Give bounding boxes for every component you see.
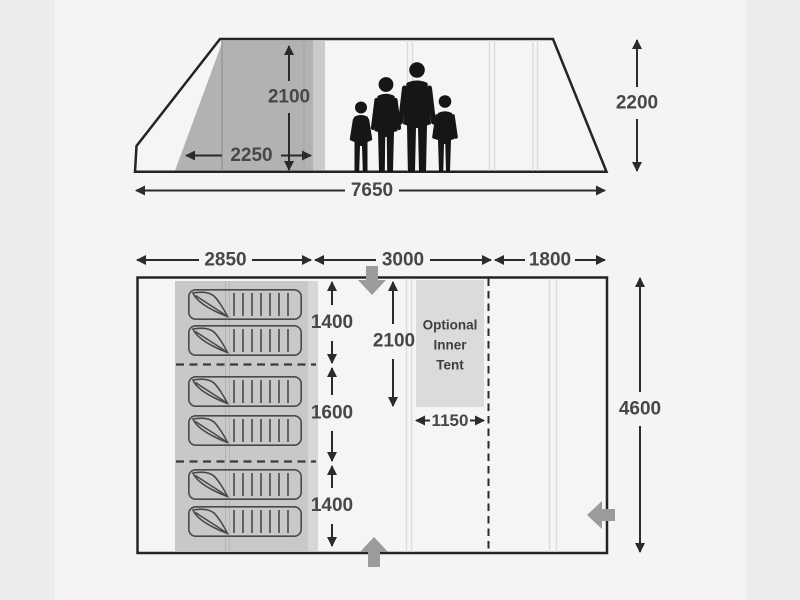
floor-plan-view: Optional Inner Tent 2850 3000 1800 4600: [137, 250, 661, 568]
girl-head: [355, 102, 367, 114]
dimension-label: 7650: [351, 180, 393, 201]
dimension-label: 1400: [311, 495, 353, 516]
man-head: [409, 62, 425, 78]
dimension-label: 1800: [529, 250, 571, 271]
boy-head: [439, 95, 452, 108]
dimension-label: 2250: [230, 145, 272, 166]
dimension-label: 1150: [432, 411, 469, 430]
diagram-svg: 2100 2250 7650 2200: [0, 0, 800, 600]
optional-inner-tent: Optional Inner Tent: [416, 280, 484, 407]
dimension-label: 3000: [382, 250, 424, 271]
dimension-label: 1400: [311, 312, 353, 333]
dimension-label: 4600: [619, 399, 661, 420]
dimension-label: 2100: [268, 87, 310, 108]
dimension-label: 1600: [311, 403, 353, 424]
tent-dimension-diagram: 2100 2250 7650 2200: [0, 0, 800, 600]
inner-tent-label-line2: Inner: [433, 338, 467, 353]
dimension-label: 2850: [204, 250, 246, 271]
inner-tent-label-line1: Optional: [423, 318, 478, 333]
dimension-label: 2100: [373, 331, 415, 352]
woman-head: [379, 77, 394, 92]
bedroom-shading-light-strip: [313, 40, 325, 170]
dimension-label: 2200: [616, 93, 658, 114]
inner-tent-label-line3: Tent: [436, 358, 464, 373]
